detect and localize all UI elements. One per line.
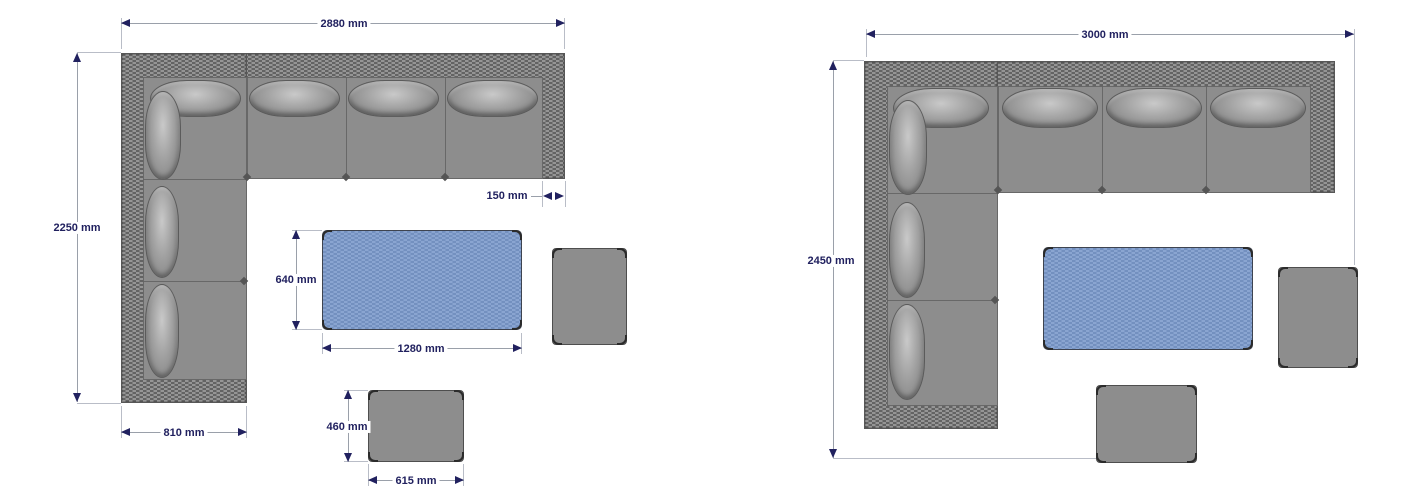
- back-cushion: [1210, 88, 1306, 128]
- page-canvas: 2880 mm 2250 mm 150 mm 810 mm 640 mm: [0, 0, 1420, 500]
- side-stool: [1278, 267, 1358, 368]
- dim-arrow-icon: [829, 61, 837, 70]
- table-corner-mark: [1043, 340, 1053, 350]
- dim-label-overall-depth: 2450 mm: [804, 255, 857, 267]
- seat-divider: [1206, 86, 1207, 193]
- stool-corner-mark: [1348, 358, 1358, 368]
- dim-label-overall-width: 3000 mm: [1078, 29, 1131, 41]
- dim-extension: [833, 458, 1096, 459]
- seat-divider: [887, 300, 998, 301]
- table-corner-mark: [1243, 247, 1253, 257]
- stool-corner-mark: [1096, 453, 1106, 463]
- dim-extension: [833, 60, 864, 61]
- seat-divider: [998, 86, 999, 193]
- table-corner-mark: [1043, 247, 1053, 257]
- diagram-right: 3000 mm 2450 mm: [0, 0, 1420, 500]
- dim-arrow-icon: [1345, 30, 1354, 38]
- stool-corner-mark: [1278, 358, 1288, 368]
- side-cushion: [889, 202, 925, 298]
- stool-corner-mark: [1278, 267, 1288, 277]
- back-cushion: [1002, 88, 1098, 128]
- stool-corner-mark: [1096, 385, 1106, 395]
- stool-corner-mark: [1348, 267, 1358, 277]
- back-cushion: [1106, 88, 1202, 128]
- dim-arrow-icon: [866, 30, 875, 38]
- table-corner-mark: [1243, 340, 1253, 350]
- side-cushion: [889, 304, 925, 400]
- corner-cushion: [889, 100, 927, 195]
- coffee-table: [1043, 247, 1253, 350]
- seat-divider: [1102, 86, 1103, 193]
- footstool: [1096, 385, 1197, 463]
- stool-corner-mark: [1187, 385, 1197, 395]
- dim-extension: [1354, 29, 1355, 265]
- stool-corner-mark: [1187, 453, 1197, 463]
- dim-arrow-icon: [829, 449, 837, 458]
